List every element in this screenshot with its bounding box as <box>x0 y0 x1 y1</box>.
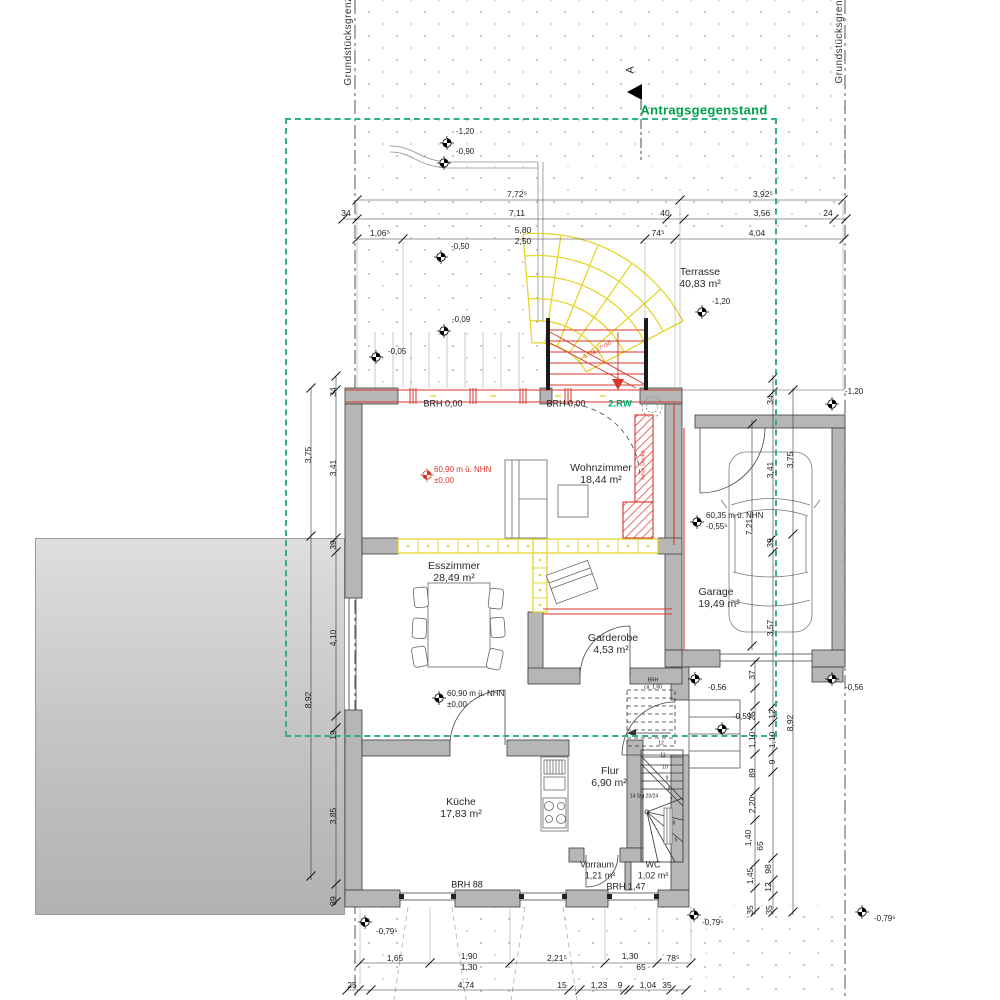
dim: 1,23 <box>591 981 608 990</box>
room-wohnzimmer: Wohnzimmer <box>570 463 632 474</box>
dim: 25 <box>347 981 356 990</box>
second-rescue-route-label: 2.RW <box>608 399 632 409</box>
dim: 89 <box>748 768 757 777</box>
dim: 1,90 <box>461 952 478 961</box>
room-vorraum: Vorraum <box>580 861 614 870</box>
dim: 3,41 <box>329 460 338 477</box>
dim: 37 <box>748 670 757 679</box>
height-note-ez-1: 60,90 m ü. NHN <box>447 690 504 698</box>
dim: 35 <box>765 905 774 914</box>
height-note-wz-2: ±0,00 <box>434 477 454 485</box>
dim: 12 <box>768 709 777 718</box>
room-wc: WC <box>646 861 661 870</box>
dim: 2,20 <box>748 797 757 814</box>
brh-label-5b: ca. 1,60 <box>644 686 662 691</box>
dim: 9 <box>618 981 623 990</box>
stair-number: 9 <box>666 777 669 782</box>
brh-label-4: BRH 1,47 <box>606 883 645 892</box>
room-garage-area: 19,49 m² <box>698 599 739 610</box>
stair-number: 10 <box>662 766 668 771</box>
dim: 9 <box>768 760 777 765</box>
dim: 24 <box>823 209 832 218</box>
dim: 2,21⁵ <box>547 954 567 963</box>
dim: 7,11 <box>509 209 525 218</box>
dim: 3,56 <box>754 209 771 218</box>
property-line-left-label: Grundstücksgrenze <box>344 0 354 86</box>
dim: 34 <box>766 395 775 404</box>
dim: 35 <box>662 981 671 990</box>
dim: 5,80 <box>515 226 532 235</box>
room-flur-area: 6,90 m² <box>591 778 627 789</box>
kitchen-block <box>541 757 568 831</box>
room-terrasse: Terrasse <box>680 267 720 278</box>
dim: 3,57 <box>766 620 775 637</box>
room-wc-area: 1,02 m² <box>638 872 669 881</box>
dim: 65 <box>756 841 765 850</box>
room-flur: Flur <box>601 766 619 777</box>
dim: 4,74 <box>458 981 475 990</box>
dim: 7,21 <box>745 519 754 536</box>
room-kueche: Küche <box>446 797 476 808</box>
dim: 40 <box>660 209 669 218</box>
dim: 78⁵ <box>667 954 680 963</box>
point-label-6: -1,20 <box>712 298 730 306</box>
stair-number: 6 <box>673 822 676 827</box>
new-element-label: neue Decke <box>641 450 647 479</box>
point-label-7: -1,20 <box>845 388 863 396</box>
stair-number: 12 <box>658 742 664 747</box>
point-label-5: -0,05 <box>388 348 406 356</box>
interior-stair-note: 14 Stg 20/24 <box>630 795 658 800</box>
dim: 3,92⁵ <box>753 190 773 199</box>
dim: 1,04 <box>640 981 657 990</box>
dim: 1,06⁵ <box>370 229 390 238</box>
dim: 3,85 <box>329 808 338 825</box>
brh-label-5: BRH <box>648 679 659 684</box>
dim: 1,10 <box>748 732 757 749</box>
dim: 1,10 <box>768 732 777 749</box>
dim: 4,04 <box>749 229 766 238</box>
dim: 3,75 <box>786 452 795 469</box>
stair-number: 7 <box>670 799 673 804</box>
room-esszimmer-area: 28,49 m² <box>433 573 474 584</box>
dim: 4,10 <box>329 630 338 647</box>
point-label-2: -0,90 <box>456 148 474 156</box>
stair-number: 8 <box>668 788 671 793</box>
room-kueche-area: 17,83 m² <box>440 809 481 820</box>
dim: 15 <box>557 981 566 990</box>
property-line-right-label: Grundstücksgrenze <box>835 0 845 84</box>
point-label-8: -0,56 <box>708 684 726 692</box>
dim: 39 <box>329 896 338 905</box>
height-note-garage-2: -0,55⁵ <box>706 523 728 531</box>
dim: 2,50 <box>515 237 532 246</box>
height-note-wz-1: 60,90 m ü. NHN <box>434 466 491 474</box>
room-garderobe: Garderobe <box>588 633 638 644</box>
room-vorraum-area: 1,21 m² <box>585 872 616 881</box>
dim: 65 <box>636 963 645 972</box>
room-garderobe-area: 4,53 m² <box>593 645 629 656</box>
dim: 8,92 <box>304 692 313 709</box>
radiator <box>664 808 672 844</box>
point-label-11: -0,79⁵ <box>376 928 398 936</box>
point-label-4: -0,09 <box>452 316 470 324</box>
dim: 8,92 <box>786 715 795 732</box>
point-label-9: -0,56 <box>845 684 863 692</box>
application-boundary <box>285 118 777 737</box>
dim: 7,72⁵ <box>507 190 527 199</box>
height-note-ez-2: ±0,00 <box>447 701 467 709</box>
dim: 1,30 <box>461 963 478 972</box>
room-terrasse-area: 40,83 m² <box>679 279 720 290</box>
room-esszimmer: Esszimmer <box>428 561 480 572</box>
brh-label-1: BRH 0,00 <box>423 400 462 409</box>
dim: 3,41 <box>766 462 775 479</box>
section-letter: A <box>626 66 637 73</box>
dim: 98 <box>764 864 773 873</box>
application-boundary-label: Antragsgegenstand <box>640 104 767 117</box>
dim: 3,75 <box>304 447 313 464</box>
dim: 12 <box>764 882 773 891</box>
dim: 39 <box>329 540 338 549</box>
room-wohnzimmer-area: 18,44 m² <box>580 475 621 486</box>
point-label-12: -0,79⁵ <box>702 919 724 927</box>
point-label-1: -1,20 <box>456 128 474 136</box>
brh-label-2: BRH 0,00 <box>546 400 585 409</box>
point-label-13: -0,79⁵ <box>874 915 896 923</box>
dim: 34 <box>329 387 338 396</box>
dim: 39 <box>766 538 775 547</box>
dim: 1,45 <box>746 868 755 885</box>
dim: 1,40 <box>744 830 753 847</box>
dim: 19 <box>329 730 338 739</box>
brh-label-3: BRH 88 <box>451 881 483 890</box>
stair-number: 5 <box>675 839 678 844</box>
dim: 1,65 <box>387 954 404 963</box>
point-label-3: -0,50 <box>451 243 469 251</box>
stair-number: 11 <box>660 754 665 759</box>
floor-plan-canvas: Antragsgegenstand Grundstücksgrenze Grun… <box>0 0 1000 1000</box>
dim: 34 <box>341 209 350 218</box>
room-garage: Garage <box>698 587 733 598</box>
dim: 74⁵ <box>652 229 665 238</box>
height-note-garage-1: 60,35 m ü. NHN <box>706 512 763 520</box>
dim: 35 <box>746 905 755 914</box>
dim: 1,30 <box>622 952 639 961</box>
dim: 25 <box>748 711 757 720</box>
